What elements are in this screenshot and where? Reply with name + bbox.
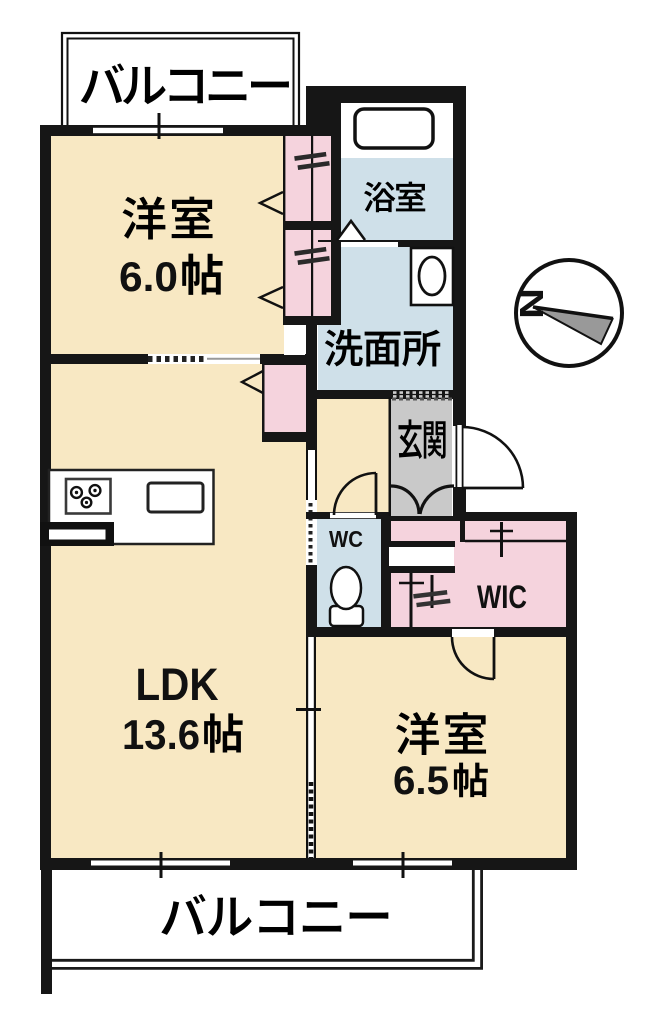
svg-text:6.0: 6.0 (119, 253, 178, 300)
svg-text:LDK: LDK (136, 659, 219, 710)
svg-text:WIC: WIC (477, 579, 527, 615)
svg-text:WC: WC (329, 526, 363, 552)
svg-text:N: N (514, 288, 551, 319)
svg-text:6.5: 6.5 (393, 759, 449, 803)
svg-text:13.6: 13.6 (122, 711, 200, 758)
